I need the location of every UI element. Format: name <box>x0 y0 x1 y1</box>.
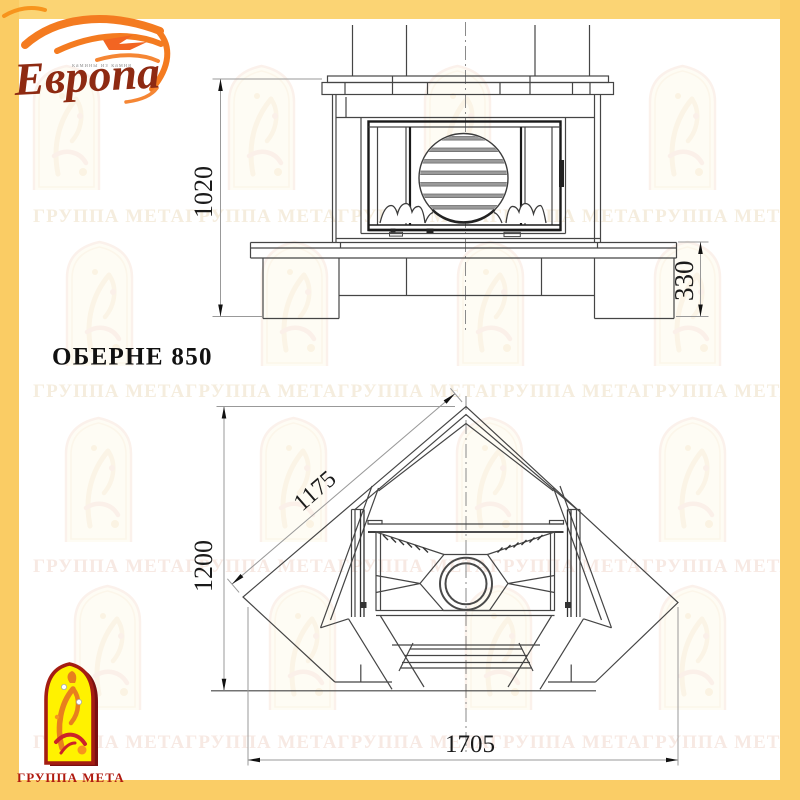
svg-text:1200: 1200 <box>189 540 218 592</box>
svg-text:ОБЕРНЕ 850: ОБЕРНЕ 850 <box>52 344 213 371</box>
svg-text:ГРУППА МЕТАГРУППА МЕТАГРУППА М: ГРУППА МЕТАГРУППА МЕТАГРУППА МЕТАГРУППА … <box>33 556 794 577</box>
svg-text:1705: 1705 <box>445 731 495 758</box>
svg-text:1020: 1020 <box>189 166 218 218</box>
svg-text:Европа: Европа <box>12 46 161 105</box>
svg-text:ГРУППА МЕТАГРУППА МЕТАГРУППА М: ГРУППА МЕТАГРУППА МЕТАГРУППА МЕТАГРУППА … <box>33 381 794 402</box>
svg-text:ГРУППА МЕТА: ГРУППА МЕТА <box>17 770 125 785</box>
svg-text:330: 330 <box>669 261 699 302</box>
svg-text:ГРУППА МЕТАГРУППА МЕТАГРУППА М: ГРУППА МЕТАГРУППА МЕТАГРУППА МЕТАГРУППА … <box>33 732 794 753</box>
